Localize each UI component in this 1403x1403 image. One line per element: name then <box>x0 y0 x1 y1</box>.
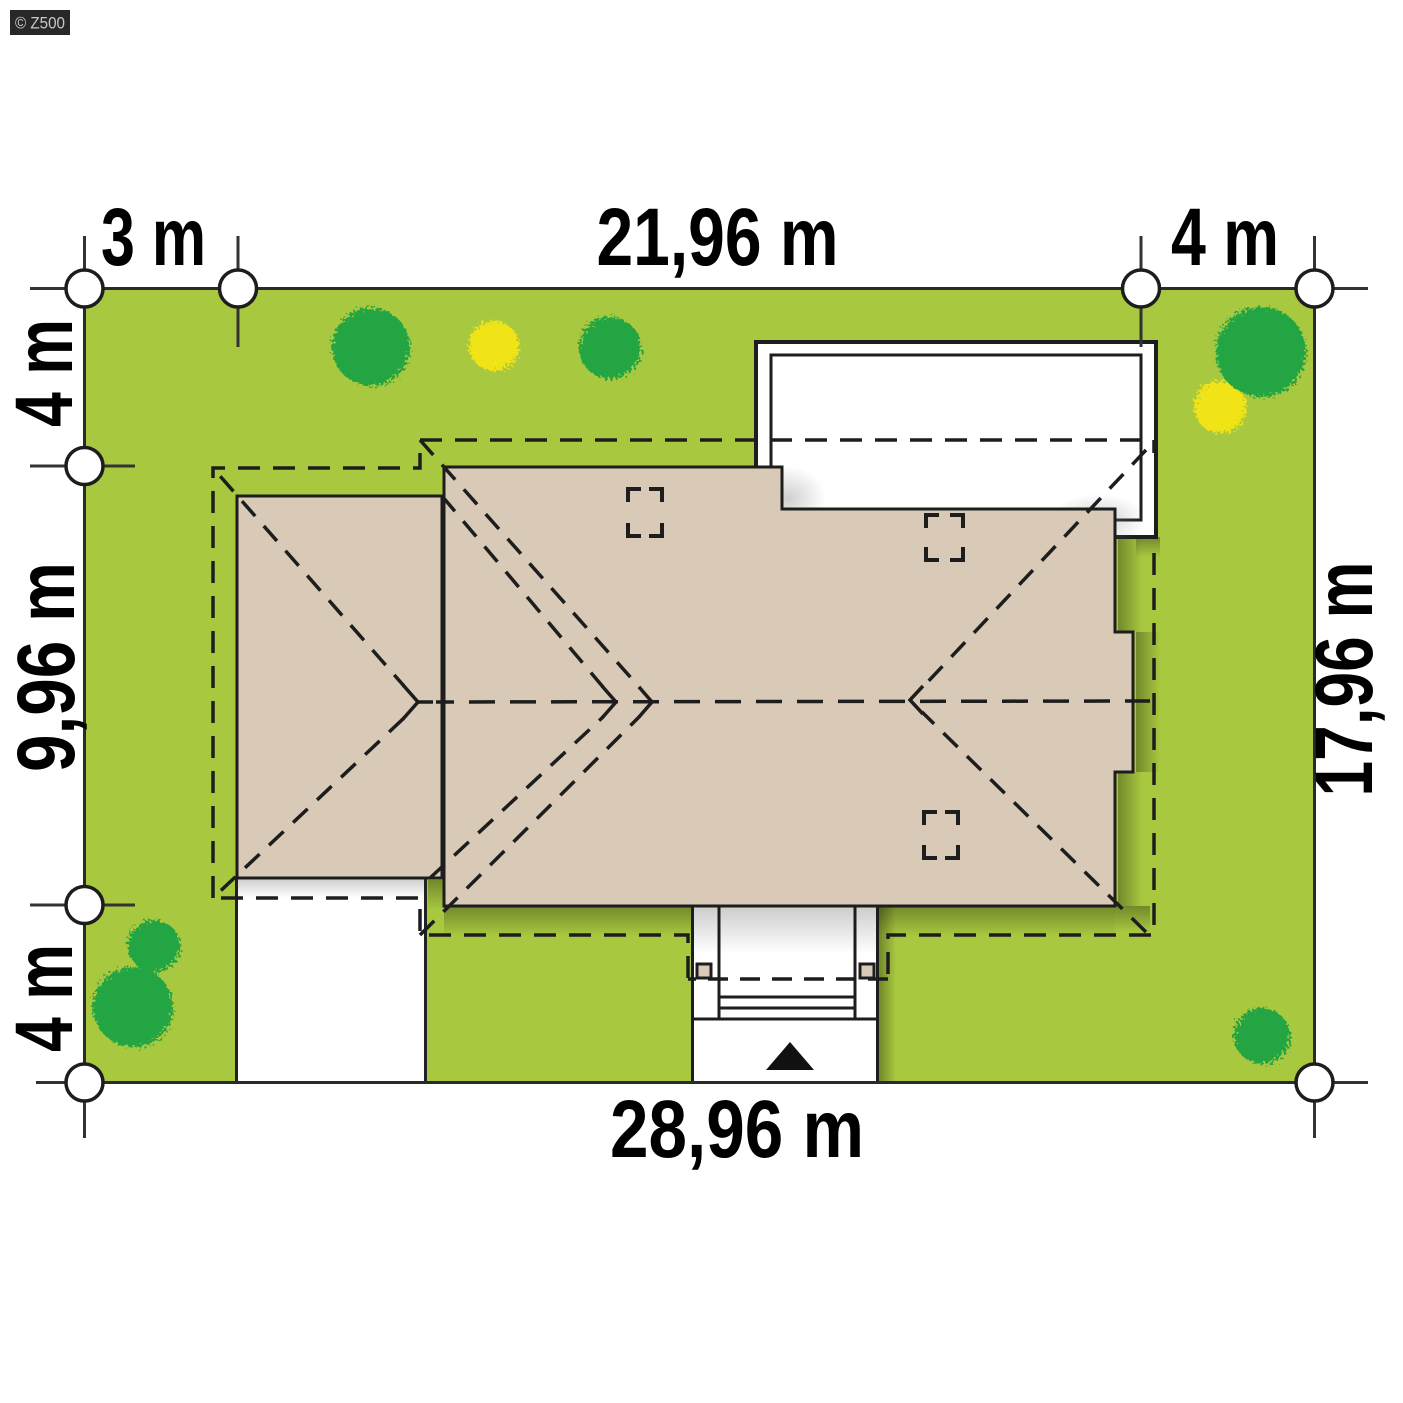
svg-text:© Z500: © Z500 <box>15 15 65 33</box>
svg-text:28,96 m: 28,96 m <box>610 1084 864 1175</box>
svg-text:4 m: 4 m <box>0 944 90 1052</box>
svg-text:4 m: 4 m <box>0 319 90 427</box>
svg-text:17,96 m: 17,96 m <box>1299 562 1390 797</box>
svg-text:9,96 m: 9,96 m <box>1 562 92 772</box>
svg-text:21,96 m: 21,96 m <box>597 192 839 283</box>
svg-text:4 m: 4 m <box>1171 192 1279 283</box>
svg-text:3 m: 3 m <box>101 192 206 283</box>
